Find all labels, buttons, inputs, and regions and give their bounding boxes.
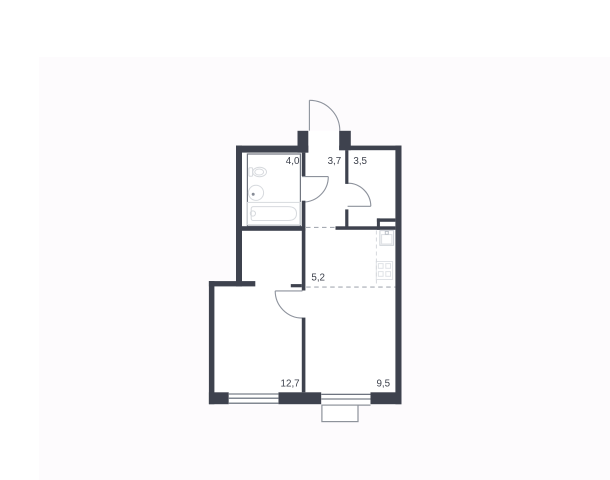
svg-text:3,5: 3,5 — [353, 156, 367, 167]
svg-text:5,2: 5,2 — [311, 272, 325, 283]
svg-text:12,7: 12,7 — [281, 379, 300, 390]
svg-text:9,5: 9,5 — [376, 379, 390, 390]
svg-text:4,0: 4,0 — [286, 156, 300, 167]
svg-text:3,7: 3,7 — [328, 156, 342, 167]
